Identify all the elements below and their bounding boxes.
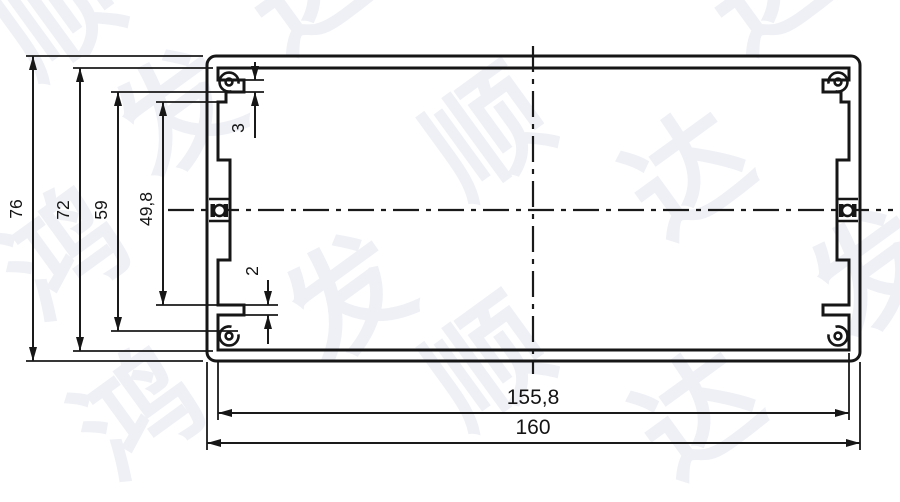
right-wall-detail-mirror (823, 68, 858, 350)
dim-label-inner-width: 155,8 (507, 386, 560, 409)
dim-label-top-ledge: 3 (228, 123, 248, 133)
arrowhead (846, 439, 860, 447)
arrowhead (114, 92, 122, 106)
dim-label-bottom-ledge: 2 (242, 266, 262, 276)
arrowhead (76, 337, 84, 351)
arrowheads (29, 56, 860, 447)
arrowhead (159, 291, 167, 305)
arrowhead (264, 315, 272, 329)
extrusion-profile-drawing: 76 72 59 49,8 3 2 155,8 160 (0, 0, 900, 500)
corner-screw-port-bottom-left (220, 326, 239, 345)
dim-label-overall-width: 160 (515, 416, 550, 439)
corner-screw-port-bottom-left-core (226, 333, 233, 340)
arrowhead (29, 56, 37, 70)
dimension-lines (33, 56, 860, 443)
dim-label-slot-height: 59 (91, 200, 111, 219)
corner-screw-port-top-left (220, 73, 239, 92)
arrowhead (76, 68, 84, 82)
corner-screw-port-top-left-core (226, 79, 233, 86)
arrowhead (835, 409, 849, 417)
arrowhead (264, 291, 272, 305)
screw-boss-left (209, 199, 230, 221)
arrowhead (218, 409, 232, 417)
dim-label-opening-height: 49,8 (136, 192, 156, 226)
arrowhead (251, 92, 259, 106)
screw-hole (214, 205, 225, 216)
extension-lines (26, 56, 860, 450)
arrowhead (114, 317, 122, 331)
dim-label-inner-height: 72 (53, 200, 73, 219)
arrowhead (159, 102, 167, 116)
arrowhead (207, 439, 221, 447)
dim-label-overall-height: 76 (6, 199, 26, 218)
arrowhead (29, 347, 37, 361)
